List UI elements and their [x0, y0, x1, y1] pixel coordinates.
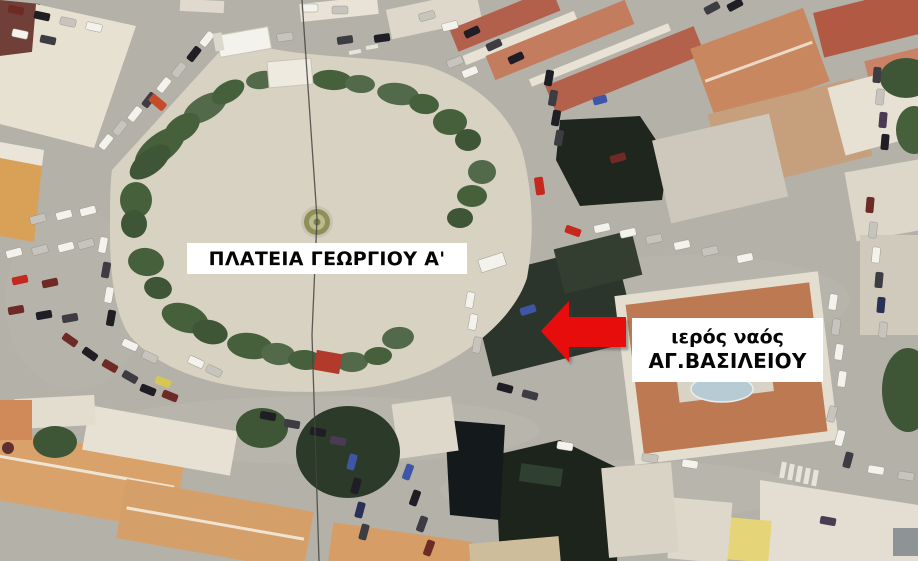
tree — [468, 160, 496, 184]
parked-car — [865, 197, 874, 214]
tree — [33, 426, 77, 458]
building-roof — [2, 442, 14, 454]
building-roof — [0, 400, 32, 440]
parked-car — [880, 134, 889, 151]
plaza-label: ΠΛΑΤΕΙΑ ΓΕΩΡΓΙΟΥ Α' — [187, 243, 467, 274]
tree — [121, 210, 147, 238]
parked-car — [876, 297, 885, 314]
parked-car — [871, 247, 880, 264]
map-graphic — [0, 0, 918, 561]
building-roof — [845, 159, 918, 242]
parked-car — [868, 222, 877, 239]
church-label: ιερός ναός ΑΓ.ΒΑΣΙΛΕΙΟΥ — [632, 318, 823, 382]
church-label-line2: ΑΓ.ΒΑΣΙΛΕΙΟΥ — [648, 349, 806, 374]
tree — [455, 129, 481, 151]
building-roof — [860, 235, 918, 335]
parked-car — [874, 272, 883, 289]
building-roof — [893, 528, 918, 556]
parked-car — [878, 322, 887, 339]
parked-car — [872, 67, 881, 84]
church-label-line1: ιερός ναός — [671, 326, 784, 350]
tree — [457, 185, 487, 207]
building-roof — [180, 0, 225, 13]
building-roof — [601, 462, 679, 558]
building-roof — [392, 396, 459, 459]
building-roof — [724, 517, 771, 561]
parked-car — [875, 89, 884, 106]
parked-car — [332, 6, 348, 14]
parked-car — [302, 4, 318, 12]
tree — [296, 406, 400, 498]
parked-car — [878, 112, 887, 129]
aerial-photo-map: ΠΛΑΤΕΙΑ ΓΕΩΡΓΙΟΥ Α' ιερός ναός ΑΓ.ΒΑΣΙΛΕ… — [0, 0, 918, 561]
plaza-label-text: ΠΛΑΤΕΙΑ ΓΕΩΡΓΙΟΥ Α' — [209, 248, 446, 270]
tree — [447, 208, 473, 228]
